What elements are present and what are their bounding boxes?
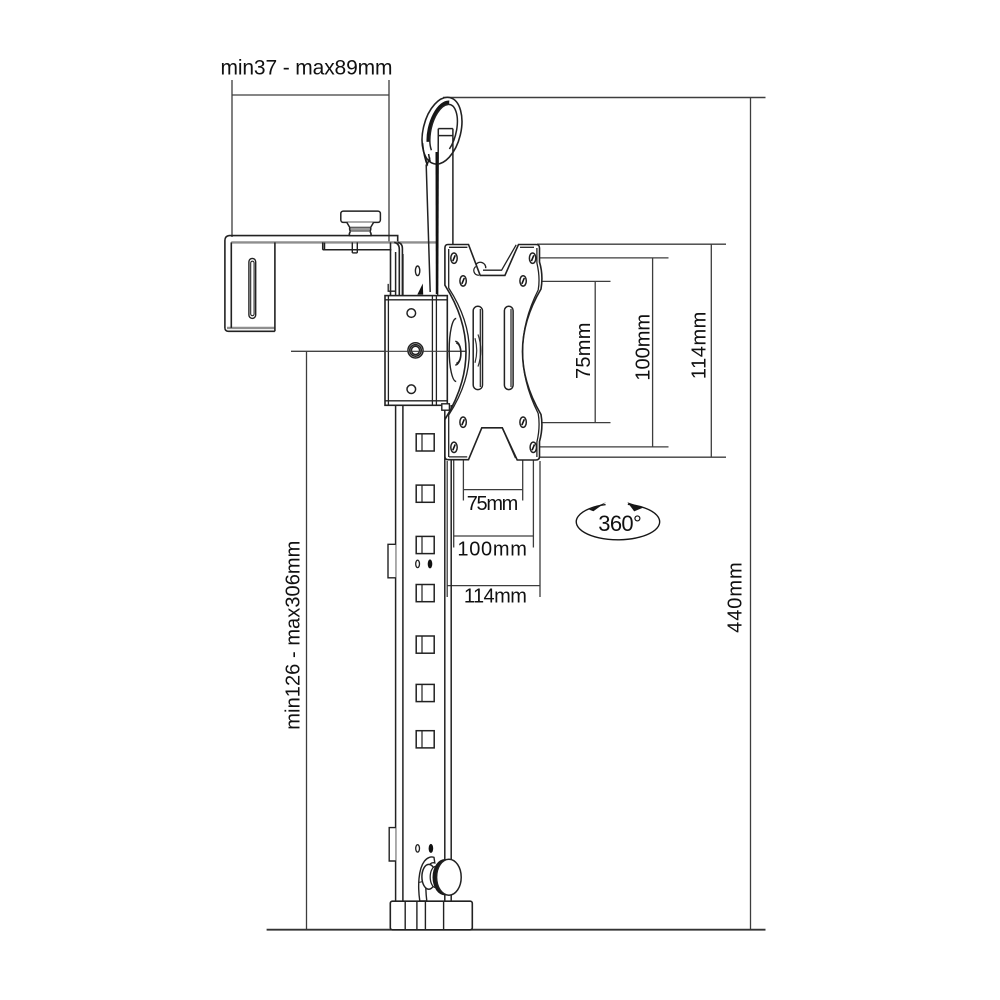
svg-text:100mm: 100mm xyxy=(457,539,527,561)
svg-text:114mm: 114mm xyxy=(464,586,527,608)
svg-text:min126 - max306mm: min126 - max306mm xyxy=(282,541,304,730)
svg-text:75mm: 75mm xyxy=(573,323,595,380)
svg-text:75mm: 75mm xyxy=(467,493,519,515)
svg-text:360°: 360° xyxy=(598,511,642,536)
svg-text:100mm: 100mm xyxy=(633,314,655,381)
svg-text:114mm: 114mm xyxy=(688,312,710,380)
svg-text:min37 - max89mm: min37 - max89mm xyxy=(221,57,393,80)
svg-text:440mm: 440mm xyxy=(724,562,746,633)
